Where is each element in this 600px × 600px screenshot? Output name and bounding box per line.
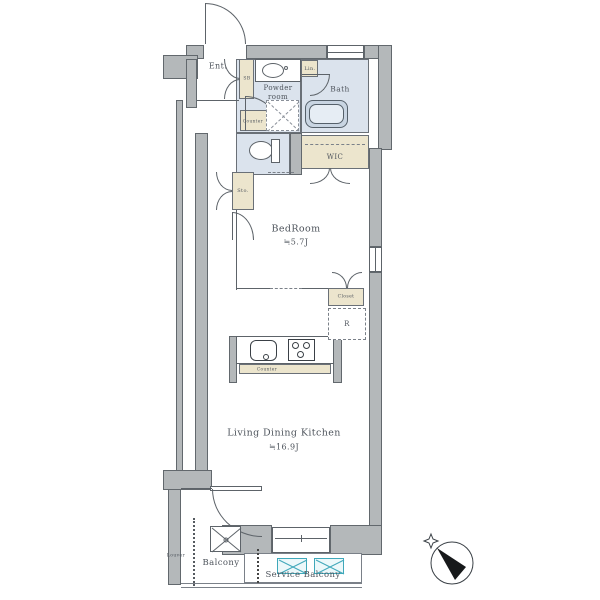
- bedroom-door-leaf: [232, 212, 233, 240]
- basin-bowl: [262, 63, 284, 78]
- balcony-divider: [257, 549, 259, 583]
- storage-door-lower: [216, 191, 232, 210]
- wall-west-inner: [195, 133, 208, 488]
- kitchen-counter-label: Counter: [257, 367, 277, 372]
- compass-icon: [420, 531, 484, 591]
- bathtub-inner: [309, 104, 344, 124]
- stove-burner-2: [303, 342, 310, 349]
- bath-label: Bath: [330, 85, 349, 94]
- shoe-box-label: SB: [243, 77, 250, 82]
- bottom-boundary-line: [181, 583, 362, 588]
- closet-door-right: [347, 272, 362, 288]
- wall-right-lower: [369, 272, 382, 555]
- stove-burner-1: [292, 342, 299, 349]
- window-top: [327, 45, 364, 59]
- entrance-door-arc: [205, 3, 246, 44]
- washer-pan-x: [267, 101, 300, 132]
- balcony-label: Balcony: [203, 558, 240, 568]
- ac-unit-x: [211, 527, 242, 553]
- storage-label: Sto.: [237, 188, 249, 194]
- wall-west-outer: [176, 100, 183, 478]
- powder-room-label-2: room: [268, 93, 288, 101]
- entrance-door-leaf: [205, 3, 206, 44]
- wall-entrance-left: [186, 59, 197, 108]
- floor-plan: Ent. SB Powder room Lin. Bath WIC Sto. B…: [0, 0, 600, 600]
- bedroom-south-wall-b: [302, 288, 328, 289]
- shoe-box-door-lower: [224, 79, 240, 99]
- powder-room-label-1: Powder: [263, 84, 292, 92]
- window-bedroom-east: [369, 247, 382, 272]
- washer-pan: [266, 100, 299, 131]
- toilet-bowl: [249, 141, 273, 160]
- wic-label: WIC: [327, 153, 344, 161]
- wic-floor: [301, 135, 369, 169]
- wall-west-outer-low: [168, 478, 181, 585]
- bedroom-size-label: ≒5.7J: [284, 238, 309, 247]
- wall-balcony-stub: [163, 470, 212, 490]
- compass: [420, 531, 484, 591]
- ldk-label: Living Dining Kitchen: [227, 428, 341, 439]
- toilet-tank: [271, 139, 280, 163]
- stove-burner-3: [297, 351, 304, 358]
- linen-label: Lin.: [304, 66, 315, 72]
- entrance-label: Ent.: [209, 62, 227, 71]
- wic-hanger-rod: [305, 144, 365, 145]
- balcony-top-edge: [181, 488, 212, 489]
- closet-label: Closet: [338, 295, 355, 300]
- window-service-balcony: [272, 527, 330, 553]
- compass-north-star: [424, 534, 438, 548]
- wall-toilet-wic: [290, 133, 302, 175]
- wic-door-left: [310, 168, 330, 184]
- wall-right-mid: [369, 148, 382, 247]
- kitchen-counter-front: [239, 364, 331, 374]
- wall-top-center: [246, 45, 327, 59]
- wall-right-upper: [378, 45, 392, 150]
- ac-unit: [210, 526, 241, 552]
- powder-room-door-leaf: [245, 96, 246, 131]
- louver-screen: [193, 518, 195, 586]
- powder-counter-label: Counter: [243, 119, 263, 124]
- bedroom-label: BedRoom: [271, 224, 320, 235]
- entrance-step-line: [197, 100, 239, 101]
- toilet-sliding-door: [268, 172, 294, 173]
- louver-label: Louver: [167, 554, 185, 559]
- compass-north-wedge: [437, 548, 466, 580]
- basin-faucet: [284, 66, 288, 70]
- wic-door-right: [330, 168, 350, 184]
- closet-door-left: [332, 272, 347, 288]
- bedroom-south-wall-open: [270, 288, 302, 289]
- service-balcony-label: Service Balcony: [265, 570, 340, 580]
- bedroom-door-arc: [232, 212, 254, 240]
- bedroom-south-wall-a: [236, 288, 270, 289]
- storage-door-upper: [216, 172, 232, 191]
- kitchen-sink-faucet: [263, 354, 269, 360]
- wall-bottom-right: [330, 525, 382, 555]
- ldk-size-label: ≒16.9J: [269, 443, 299, 452]
- refrigerator-label: R: [344, 320, 350, 328]
